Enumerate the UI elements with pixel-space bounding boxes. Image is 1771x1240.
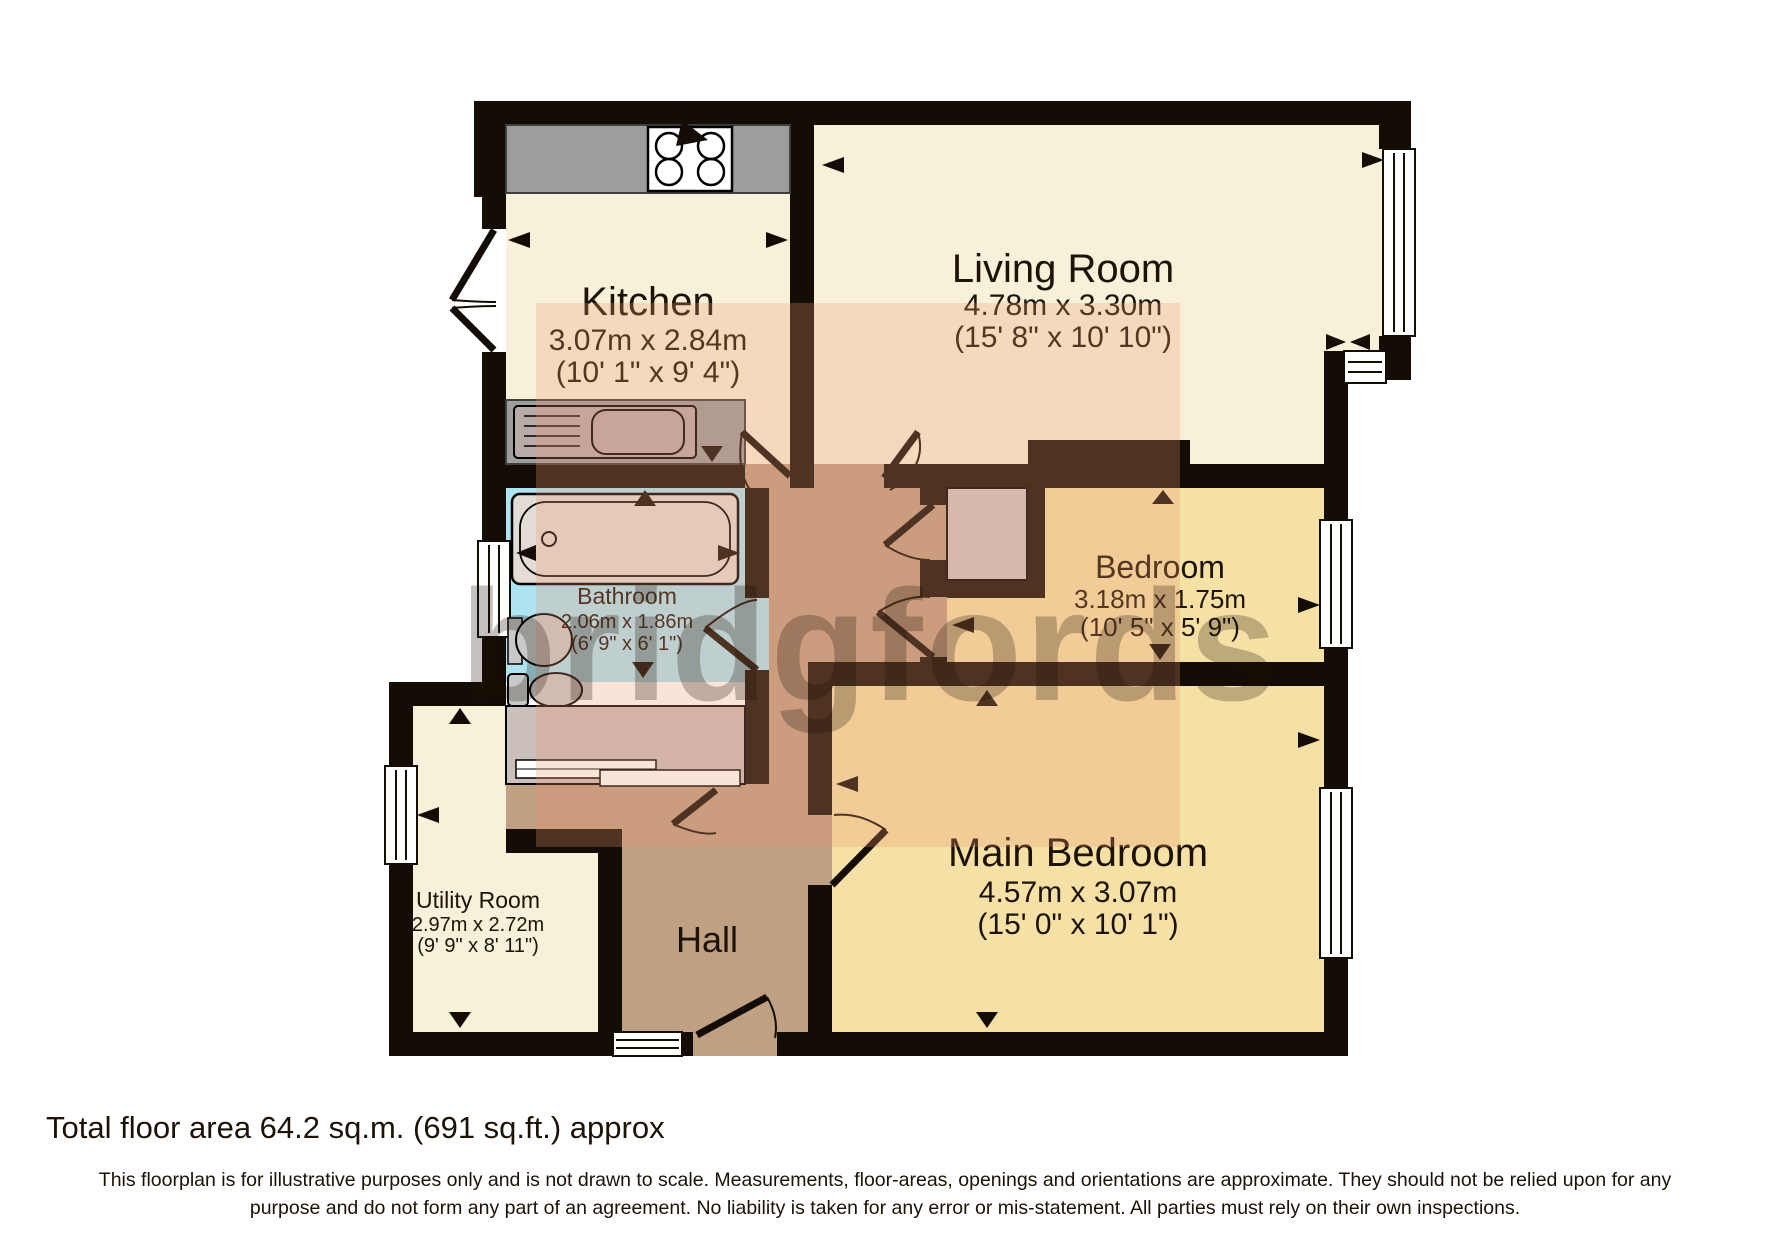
watermark: bridgfords [460, 303, 1280, 847]
wall-main-bedroom-left-lower [808, 885, 832, 1032]
utility-window-icon [385, 766, 417, 864]
wall-living-corner-top [1379, 101, 1411, 149]
living-notch-window-icon [1344, 351, 1386, 383]
utility-room-metric: 2.97m x 2.72m [412, 914, 544, 936]
wall-kitchen-left-lower [482, 352, 506, 542]
floorplan-page: Kitchen 3.07m x 2.84m (10' 1" x 9' 4") L… [0, 0, 1771, 1240]
disclaimer-line1: This floorplan is for illustrative purpo… [99, 1169, 1672, 1191]
wall-kitchen-left-upper [482, 125, 506, 229]
main-bedroom-window-icon [1320, 788, 1352, 958]
wall-utility-hall-divider [598, 853, 622, 1032]
wall-bottom-stub [682, 1032, 693, 1056]
hall-name: Hall [676, 919, 738, 960]
main-bedroom-label: Main Bedroom 4.57m x 3.07m (15' 0" x 10'… [948, 831, 1208, 941]
french-door-icon [452, 230, 496, 350]
wall-bottom-right [777, 1032, 1348, 1056]
wall-utility-left-lower [389, 862, 413, 1056]
total-floor-area: Total floor area 64.2 sq.m. (691 sq.ft.)… [46, 1110, 665, 1145]
wall-bottom-left [389, 1032, 613, 1056]
utility-room-imperial: (9' 9" x 8' 11") [417, 935, 539, 957]
main-bedroom-metric: 4.57m x 3.07m [979, 876, 1177, 909]
main-bedroom-imperial: (15' 0" x 10' 1") [977, 908, 1178, 941]
front-door-sill-icon [613, 1032, 682, 1056]
living-room-window-icon [1383, 149, 1415, 336]
wall-top [482, 101, 1411, 125]
disclaimer-line2: purpose and do not form any part of an a… [250, 1197, 1520, 1219]
watermark-text: bridgfords [460, 558, 1280, 734]
living-room-name: Living Room [952, 247, 1174, 291]
floorplan-drawing: Kitchen 3.07m x 2.84m (10' 1" x 9' 4") L… [0, 0, 1771, 1240]
utility-room-name: Utility Room [416, 887, 540, 913]
bedroom-window-icon [1320, 520, 1352, 648]
utility-room-label: Utility Room 2.97m x 2.72m (9' 9" x 8' 1… [412, 887, 544, 957]
front-doorway [693, 1032, 777, 1056]
footer: Total floor area 64.2 sq.m. (691 sq.ft.)… [46, 1110, 1671, 1219]
wall-utility-left-upper [389, 706, 413, 768]
